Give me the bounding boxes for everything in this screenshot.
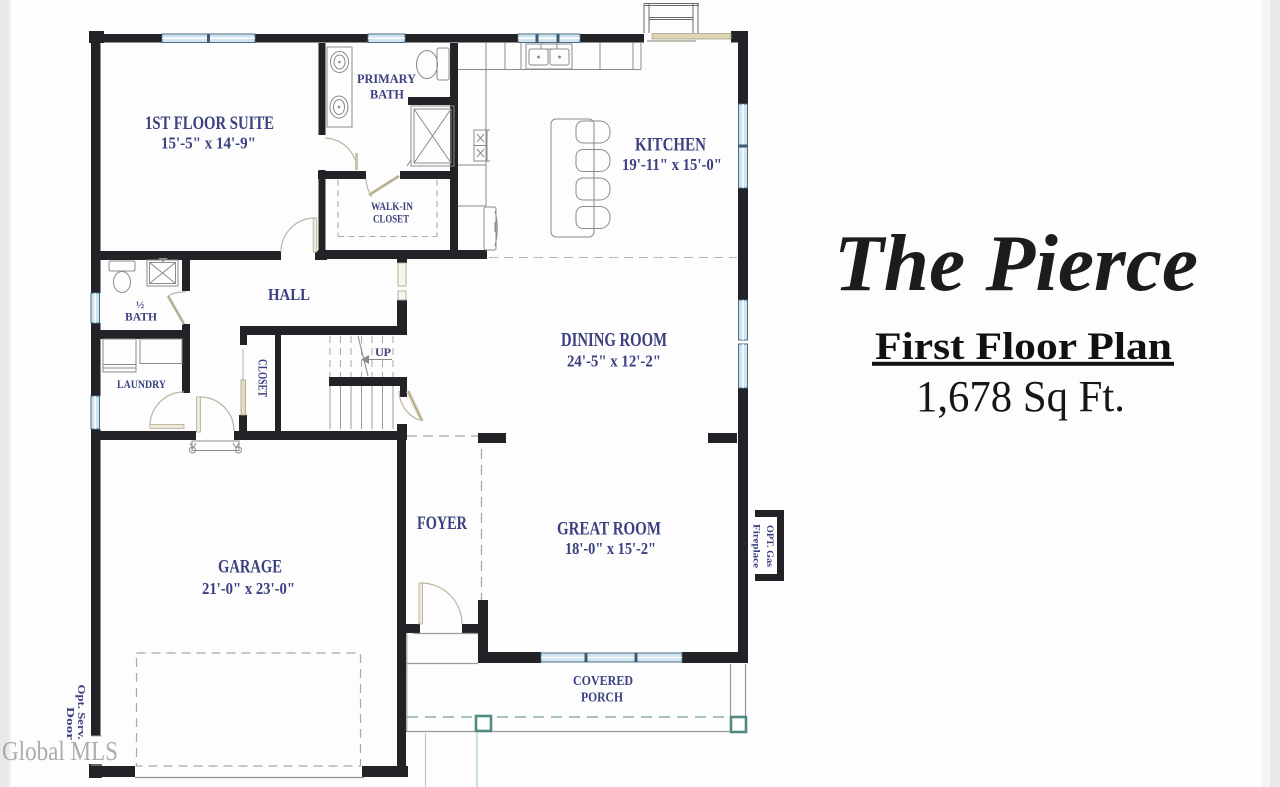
svg-text:HALL: HALL [268,285,310,304]
svg-text:1,678 Sq Ft.: 1,678 Sq Ft. [916,371,1125,421]
svg-text:Opt. Serv.: Opt. Serv. [75,685,86,740]
svg-text:19'-11" x 15'-0": 19'-11" x 15'-0" [622,155,722,174]
svg-text:First Floor Plan: First Floor Plan [875,325,1172,368]
svg-text:15'-5" x 14'-9": 15'-5" x 14'-9" [161,134,256,153]
svg-text:Global MLS: Global MLS [2,736,118,766]
svg-text:18'-0" x 15'-2": 18'-0" x 15'-2" [565,539,656,558]
svg-text:KITCHEN: KITCHEN [635,135,706,156]
svg-text:1ST FLOOR SUITE: 1ST FLOOR SUITE [145,113,274,134]
svg-text:BATH: BATH [125,312,157,324]
svg-text:LAUNDRY: LAUNDRY [117,377,166,391]
svg-text:WALK-IN: WALK-IN [371,201,414,213]
svg-text:CLOSET: CLOSET [256,359,271,397]
svg-text:COVERED: COVERED [573,674,633,689]
svg-text:DINING ROOM: DINING ROOM [561,330,667,351]
svg-text:GARAGE: GARAGE [218,557,282,578]
svg-text:24'-5" x 12'-2": 24'-5" x 12'-2" [567,352,661,371]
svg-text:FOYER: FOYER [417,513,467,534]
svg-text:GREAT ROOM: GREAT ROOM [557,519,661,540]
svg-text:½: ½ [136,299,144,311]
svg-text:PRIMARY: PRIMARY [357,71,417,86]
svg-text:PORCH: PORCH [581,691,623,706]
svg-text:Fireplace: Fireplace [751,524,761,568]
svg-text:The Pierce: The Pierce [834,218,1198,308]
svg-text:21'-0" x 23'-0": 21'-0" x 23'-0" [202,579,295,598]
svg-text:BATH: BATH [370,87,404,102]
svg-text:UP: UP [375,345,391,359]
svg-text:OPT. Gas: OPT. Gas [764,525,774,567]
svg-text:CLOSET: CLOSET [373,214,409,226]
